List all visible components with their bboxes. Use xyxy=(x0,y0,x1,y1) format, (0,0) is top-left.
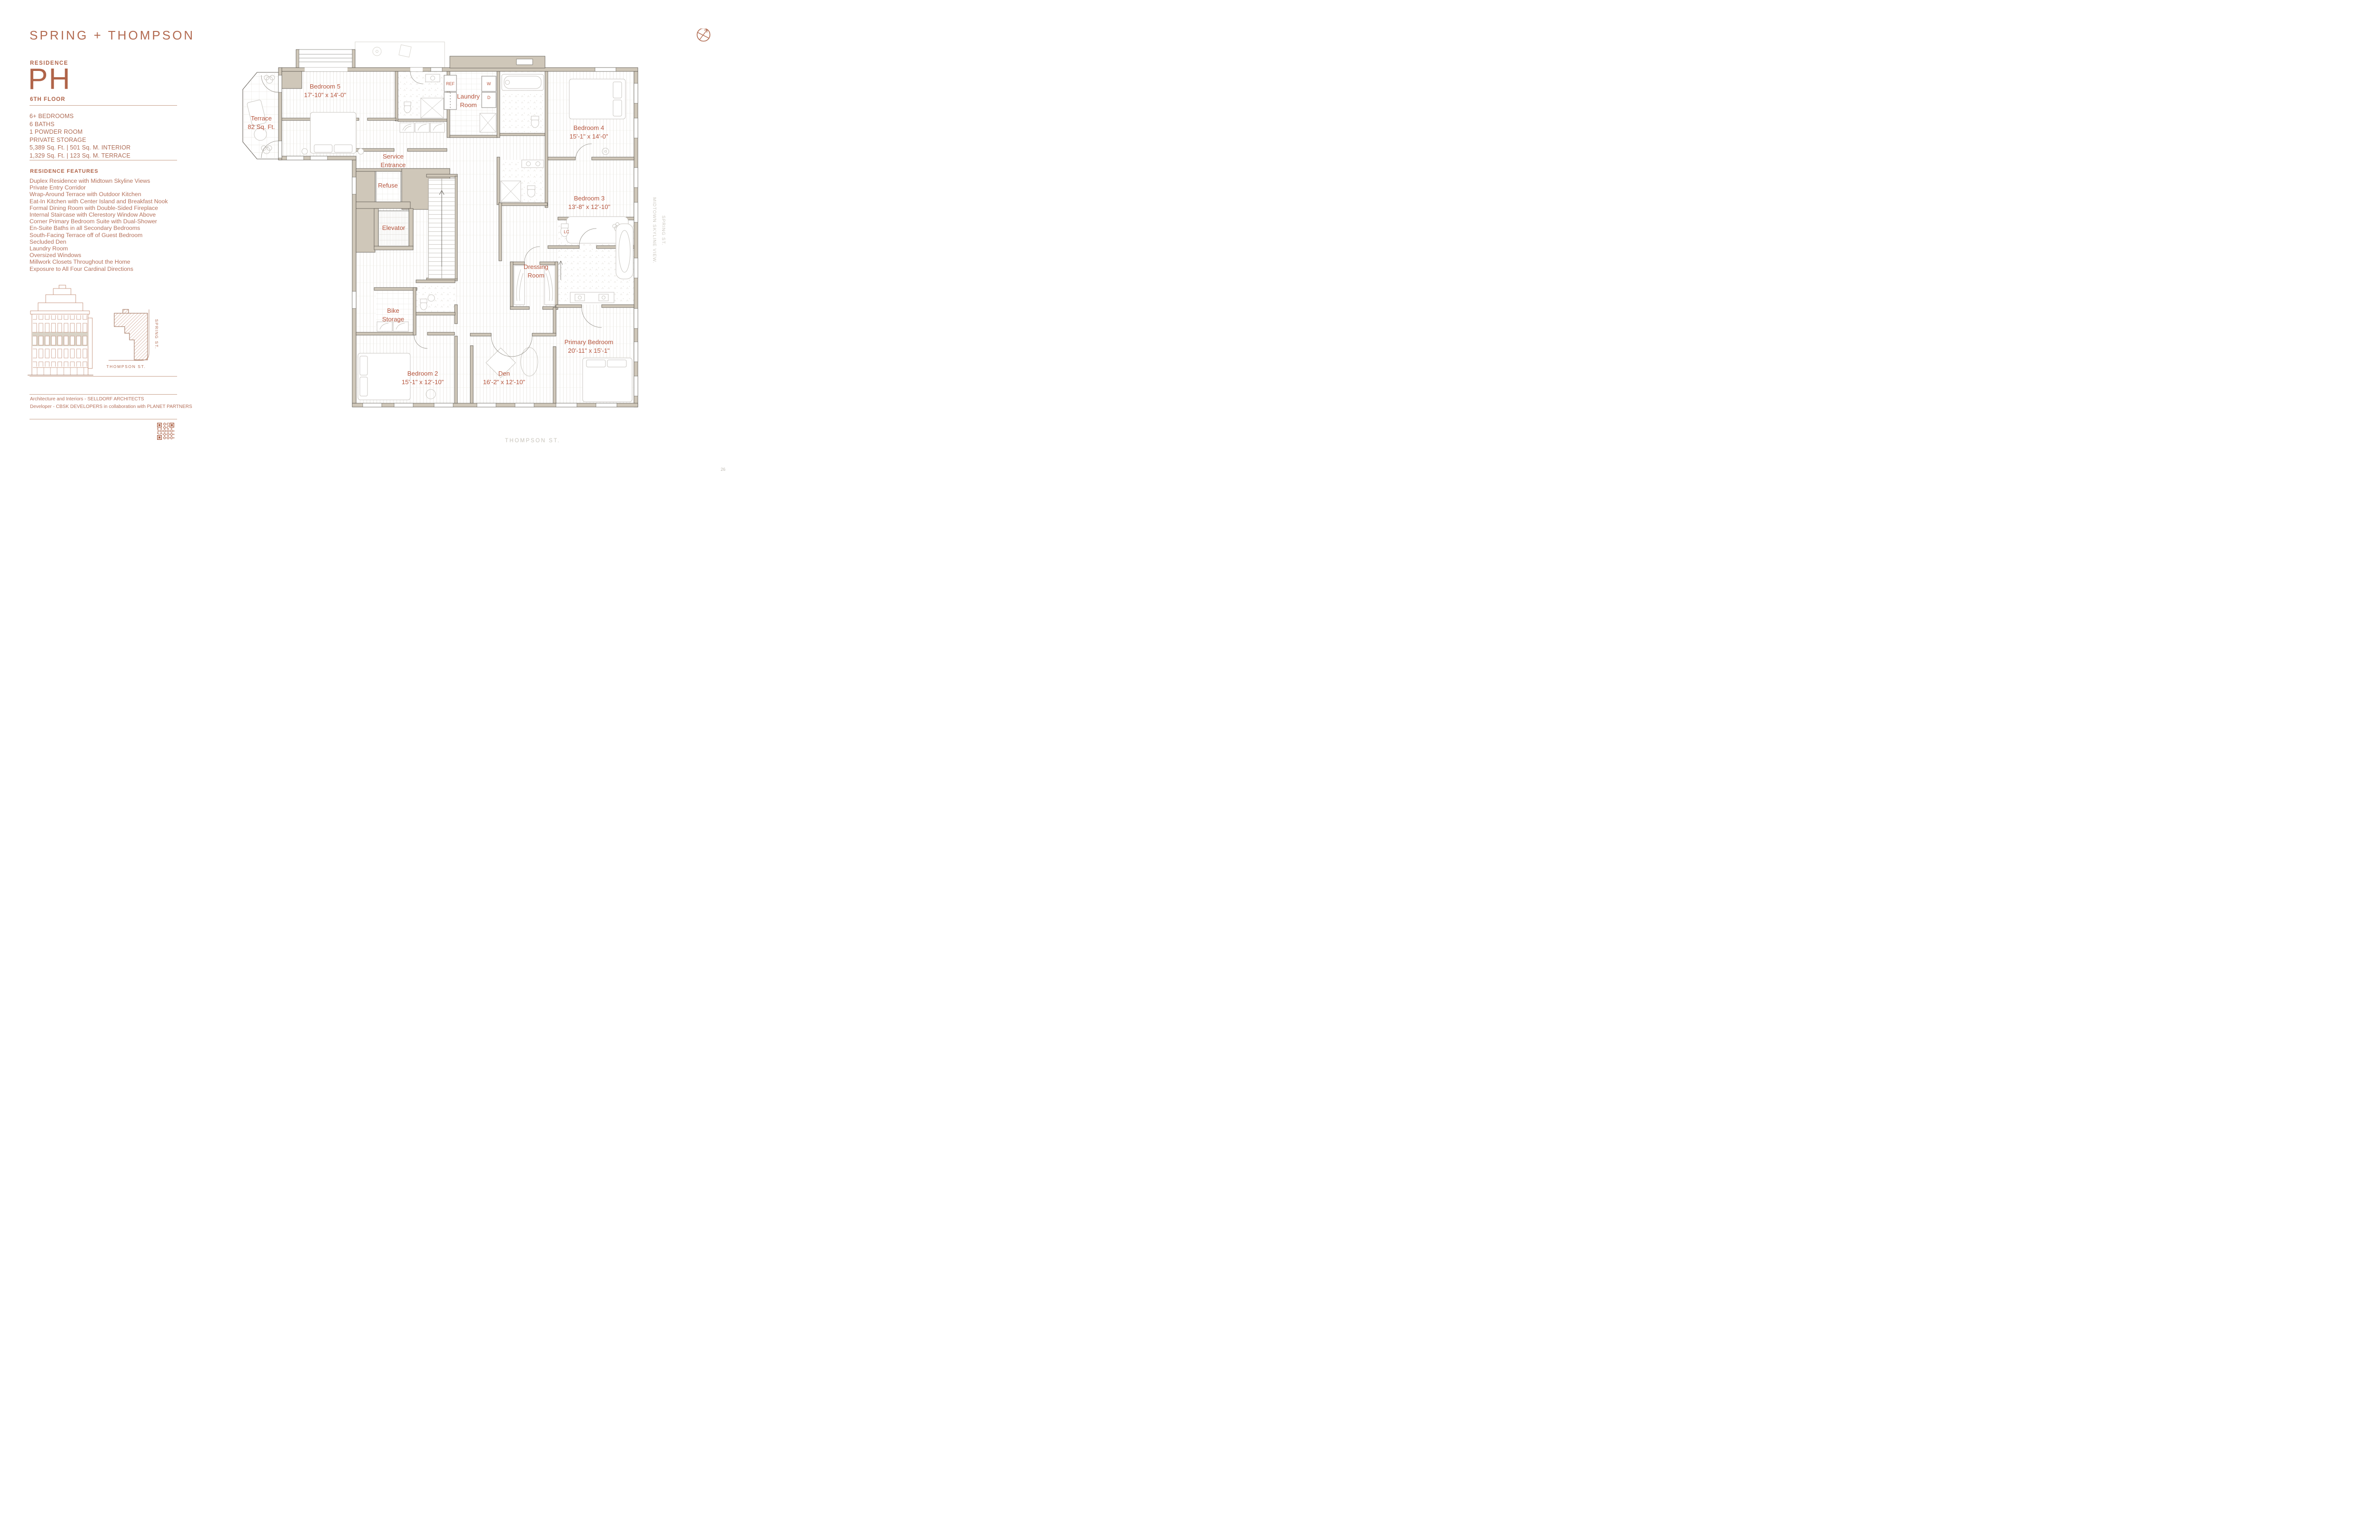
credit-architect: Architecture and Interiors - SELLDORF AR… xyxy=(30,397,144,402)
label-page-number: 26 xyxy=(721,467,725,472)
label-refrigerator: REF xyxy=(446,81,455,86)
residence-floor: 6TH FLOOR xyxy=(30,97,65,102)
label-thompson-st: THOMPSON ST. xyxy=(505,438,560,444)
features-list-item: South-Facing Terrace off of Guest Bedroo… xyxy=(30,232,168,238)
divider xyxy=(30,419,177,419)
stats-list-item: PRIVATE STORAGE xyxy=(30,136,130,144)
qr-code xyxy=(157,423,174,440)
features-list-item: Duplex Residence with Midtown Skyline Vi… xyxy=(30,178,168,184)
features-list-item: Private Entry Corridor xyxy=(30,184,168,191)
features-title: RESIDENCE FEATURES xyxy=(30,169,99,174)
label-midtown-view: MIDTOWN SKYLINE VIEW. xyxy=(652,197,657,263)
sink xyxy=(428,295,435,301)
stats-list: 6+ BEDROOMS6 BATHS1 POWDER ROOMPRIVATE S… xyxy=(30,112,130,159)
stats-list-item: 5,389 Sq. Ft. | 501 Sq. M. INTERIOR xyxy=(30,144,130,152)
stats-list-item: 1 POWDER ROOM xyxy=(30,128,130,136)
roof-terrace-outline xyxy=(355,42,445,68)
divider xyxy=(30,394,177,395)
features-list-item: Oversized Windows xyxy=(30,252,168,258)
features-list: Duplex Residence with Midtown Skyline Vi… xyxy=(30,178,168,272)
building-elevation-drawing xyxy=(28,285,93,375)
bathtub xyxy=(616,224,633,279)
building-footprint xyxy=(114,313,148,360)
staircase xyxy=(428,179,455,278)
features-list-item: Exposure to All Four Cardinal Directions xyxy=(30,266,168,272)
dryer-box xyxy=(482,92,496,108)
credit-developer: Developer - CBSK DEVELOPERS in collabora… xyxy=(30,404,192,409)
stats-list-item: 6 BATHS xyxy=(30,120,130,129)
brand-title: SPRING + THOMPSON xyxy=(30,28,195,43)
label-linen-closet: LC xyxy=(564,229,569,234)
features-list-item: Formal Dining Room with Double-Sided Fir… xyxy=(30,205,168,211)
qr-pattern xyxy=(157,423,174,440)
label-refuse: Refuse xyxy=(378,182,398,189)
features-list-item: Wrap-Around Terrace with Outdoor Kitchen xyxy=(30,191,168,198)
floor-plan: Bedroom 517'-10" x 14'-0"Terrace82 Sq. F… xyxy=(209,29,735,476)
features-list-item: Corner Primary Bedroom Suite with Dual-S… xyxy=(30,218,168,225)
divider xyxy=(30,160,177,160)
keymap-spring-st-label: SPRING ST. xyxy=(154,319,159,349)
stats-list-item: 6+ BEDROOMS xyxy=(30,112,130,120)
features-list-item: Secluded Den xyxy=(30,238,168,245)
features-list-item: Eat-In Kitchen with Center Island and Br… xyxy=(30,198,168,205)
divider xyxy=(30,105,177,106)
divider xyxy=(30,376,177,377)
brochure-page: SPRING + THOMPSON RESIDENCE PH 6TH FLOOR… xyxy=(0,0,735,476)
building-elevation-and-keymap: SPRING ST. THOMPSON ST. xyxy=(24,282,181,377)
label-elevator: Elevator xyxy=(382,224,406,231)
features-list-item: Millwork Closets Throughout the Home xyxy=(30,258,168,265)
residence-id: PH xyxy=(28,65,71,94)
features-list-item: Internal Staircase with Clerestory Windo… xyxy=(30,211,168,218)
location-keymap xyxy=(109,309,149,360)
keymap-thompson-st-label: THOMPSON ST. xyxy=(107,364,146,369)
features-list-item: En-Suite Baths in all Secondary Bedrooms xyxy=(30,225,168,231)
label-washer: W xyxy=(487,81,491,86)
stats-list-item: 1,329 Sq. Ft. | 123 Sq. M. TERRACE xyxy=(30,152,130,160)
vanity xyxy=(522,160,544,168)
compass-icon xyxy=(697,29,710,41)
label-dryer: D xyxy=(487,95,491,100)
label-spring-st: SPRING ST. xyxy=(661,216,666,246)
features-list-item: Laundry Room xyxy=(30,245,168,252)
bathtub xyxy=(502,74,544,90)
